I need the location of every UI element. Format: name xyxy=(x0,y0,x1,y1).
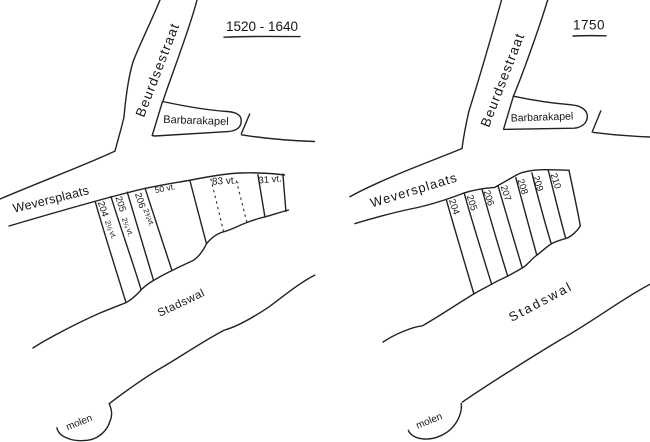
svg-text:1520 - 1640: 1520 - 1640 xyxy=(226,19,298,34)
svg-text:31 vt.: 31 vt. xyxy=(258,174,282,187)
svg-text:Barbarakapel: Barbarakapel xyxy=(511,110,574,124)
svg-text:Barbarakapel: Barbarakapel xyxy=(163,114,229,128)
svg-text:83 vt..: 83 vt.. xyxy=(212,175,240,187)
svg-text:1750: 1750 xyxy=(573,18,605,33)
